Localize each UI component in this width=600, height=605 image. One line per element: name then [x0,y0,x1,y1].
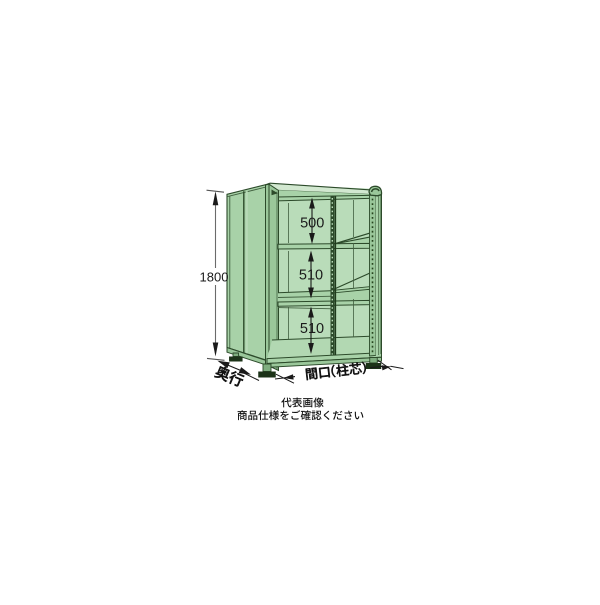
svg-text:510: 510 [299,268,323,284]
svg-text:500: 500 [300,216,324,232]
svg-text:510: 510 [300,321,324,337]
svg-text:1800: 1800 [200,270,229,285]
